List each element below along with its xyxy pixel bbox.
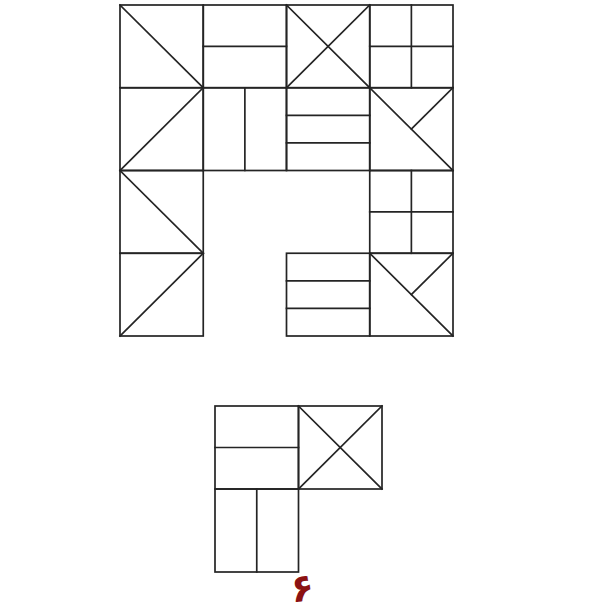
puzzle-cell-hsplit xyxy=(203,5,286,88)
puzzle-cell-cross xyxy=(299,406,383,489)
cell-pattern-line xyxy=(120,88,203,171)
puzzle-cell-vsplit xyxy=(203,88,286,171)
answer-figure xyxy=(215,406,382,572)
puzzle-cell-hsplit xyxy=(215,406,299,489)
answer-digit-label: ۶ xyxy=(288,565,317,612)
cell-pattern-line xyxy=(120,253,203,336)
puzzle-cell-hthirds xyxy=(287,253,370,336)
puzzle-cell-cross xyxy=(287,5,370,88)
cell-pattern-line xyxy=(120,171,203,254)
puzzle-cell-diag-tlbr xyxy=(120,171,203,254)
main-figure xyxy=(120,5,453,336)
puzzle-cell-diag-tlbr xyxy=(120,5,203,88)
cell-border xyxy=(287,253,370,336)
puzzle-cell-diag-tlbr-half xyxy=(370,88,453,171)
puzzle-cell-grid2x2 xyxy=(370,5,453,88)
cell-border xyxy=(287,88,370,171)
cell-pattern-line xyxy=(411,253,453,294)
puzzle-cell-grid2x2 xyxy=(370,171,453,254)
puzzle-canvas: ۶ xyxy=(0,0,600,613)
puzzle-cell-diag-trbl xyxy=(120,88,203,171)
cell-pattern-line xyxy=(120,5,203,88)
puzzle-cell-diag-trbl xyxy=(120,253,203,336)
cell-pattern-line xyxy=(411,88,453,129)
puzzle-cell-vsplit xyxy=(215,489,299,572)
puzzle-cell-hthirds xyxy=(287,88,370,171)
puzzle-cell-diag-tlbr-half xyxy=(370,253,453,336)
puzzle-page: ۶ xyxy=(0,0,600,613)
